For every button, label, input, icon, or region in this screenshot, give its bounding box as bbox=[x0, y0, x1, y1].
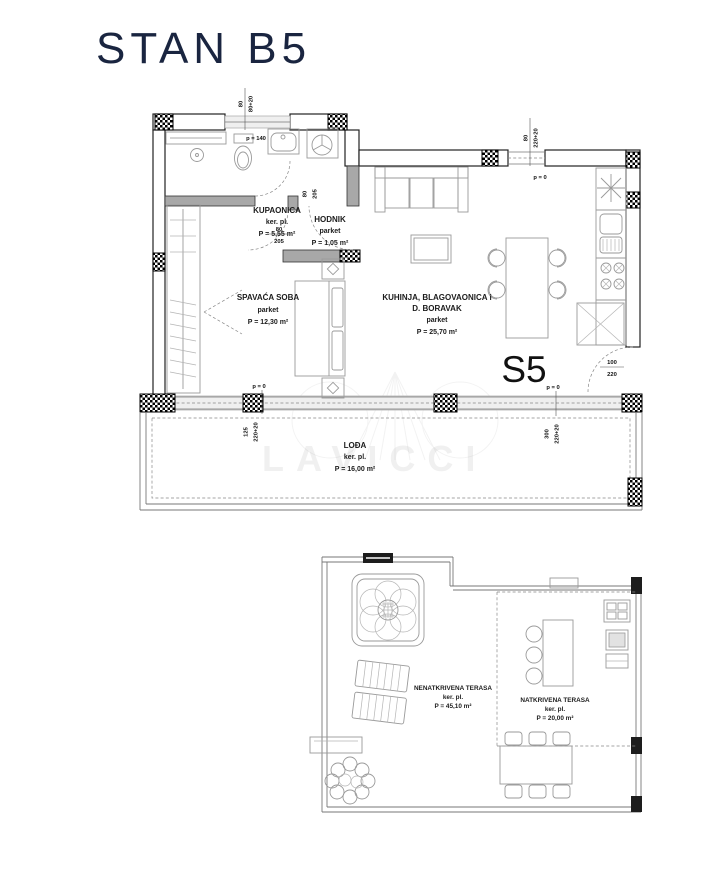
exterior-walls bbox=[153, 114, 640, 395]
outdoor-dining-icon bbox=[500, 732, 572, 798]
living-furniture bbox=[375, 167, 626, 345]
sun-lounger-icon bbox=[355, 660, 410, 692]
svg-text:D. BORAVAK: D. BORAVAK bbox=[412, 304, 462, 313]
svg-text:205: 205 bbox=[313, 188, 319, 198]
svg-text:KUHINJA, BLAGOVAONICA i: KUHINJA, BLAGOVAONICA i bbox=[382, 293, 491, 302]
svg-text:parket: parket bbox=[319, 228, 341, 235]
svg-text:p = 0: p = 0 bbox=[252, 384, 265, 390]
sun-lounger-icon bbox=[352, 692, 407, 724]
washbasin-icon bbox=[268, 129, 299, 154]
svg-text:P = 25,70 m²: P = 25,70 m² bbox=[417, 329, 458, 336]
terrace-plan: NENATKRIVENA TERASA ker. pl. P = 45,10 m… bbox=[310, 553, 642, 812]
svg-text:300: 300 bbox=[545, 429, 551, 439]
sink-icon bbox=[191, 149, 204, 162]
label-nenatkrivena-terasa: NENATKRIVENA TERASA ker. pl. P = 45,10 m… bbox=[414, 685, 492, 710]
svg-text:80: 80 bbox=[303, 191, 309, 197]
floor-plan-page: STAN B5 LAVICCI bbox=[0, 0, 725, 871]
planter-box bbox=[310, 737, 362, 753]
south-glazing-band bbox=[140, 394, 642, 412]
svg-text:P = 16,00 m²: P = 16,00 m² bbox=[335, 466, 376, 473]
room-label-kupaonica: KUPAONICA ker. pl. P = 5,55 m² bbox=[253, 206, 301, 238]
watermark-crest bbox=[292, 372, 498, 460]
svg-text:ker. pl.: ker. pl. bbox=[443, 694, 463, 701]
kitchen-sink-icon bbox=[600, 214, 622, 253]
dining-table-icon bbox=[488, 238, 566, 338]
bed-icon bbox=[295, 281, 345, 376]
coffee-table-icon bbox=[411, 235, 451, 263]
svg-text:ker. pl.: ker. pl. bbox=[266, 219, 288, 226]
sofa-icon bbox=[375, 167, 468, 212]
svg-text:220+20: 220+20 bbox=[555, 424, 561, 444]
svg-text:HODNIK: HODNIK bbox=[314, 215, 346, 224]
unit-label: S5 bbox=[501, 349, 546, 390]
floor-plan-svg: KUPAONICA ker. pl. P = 5,55 m² HODNIK pa… bbox=[0, 0, 725, 871]
apartment-plan: KUPAONICA ker. pl. P = 5,55 m² HODNIK pa… bbox=[140, 88, 642, 510]
svg-text:ker. pl.: ker. pl. bbox=[545, 706, 565, 713]
hood-icon bbox=[597, 174, 625, 202]
svg-text:p = 0: p = 0 bbox=[546, 385, 559, 391]
window-frame bbox=[631, 737, 642, 754]
appliance-box-icon bbox=[577, 303, 624, 345]
svg-text:NENATKRIVENA TERASA: NENATKRIVENA TERASA bbox=[414, 685, 492, 692]
svg-text:parket: parket bbox=[257, 307, 279, 314]
kitchen-counter-icon bbox=[596, 168, 626, 345]
label-natkrivena-terasa: NATKRIVENA TERASA ker. pl. P = 20,00 m² bbox=[520, 697, 590, 722]
svg-text:parket: parket bbox=[426, 317, 448, 324]
svg-text:LOĐA: LOĐA bbox=[344, 441, 367, 450]
plant-icon bbox=[325, 757, 375, 804]
bar-island-icon bbox=[526, 620, 573, 686]
svg-text:100: 100 bbox=[607, 360, 617, 366]
svg-text:125: 125 bbox=[244, 426, 250, 436]
svg-text:220: 220 bbox=[607, 372, 617, 378]
svg-text:P = 20,00 m²: P = 20,00 m² bbox=[536, 715, 573, 722]
svg-text:P = 45,10 m²: P = 45,10 m² bbox=[434, 703, 471, 710]
stove-icon bbox=[601, 263, 624, 289]
washing-machine-icon bbox=[307, 129, 338, 158]
svg-text:80: 80 bbox=[524, 135, 530, 141]
room-label-hodnik: HODNIK parket P = 1,05 m² bbox=[312, 215, 349, 247]
svg-text:80: 80 bbox=[239, 101, 245, 107]
svg-text:80+20: 80+20 bbox=[249, 96, 255, 112]
covered-terrace-boundary bbox=[497, 592, 636, 746]
window-frame bbox=[631, 577, 642, 594]
svg-text:KUPAONICA: KUPAONICA bbox=[253, 206, 301, 215]
room-label-kuhinja: KUHINJA, BLAGOVAONICA i D. BORAVAK parke… bbox=[382, 293, 491, 336]
outdoor-kitchen-icon bbox=[604, 600, 630, 668]
svg-text:205: 205 bbox=[274, 239, 284, 245]
svg-text:p = 140: p = 140 bbox=[246, 136, 266, 142]
svg-text:SPAVAĆA SOBA: SPAVAĆA SOBA bbox=[237, 293, 300, 302]
loggia bbox=[140, 412, 642, 510]
wardrobe-icon bbox=[167, 205, 200, 393]
svg-text:220+20: 220+20 bbox=[534, 128, 540, 148]
svg-text:ker. pl.: ker. pl. bbox=[344, 454, 366, 461]
svg-text:NATKRIVENA TERASA: NATKRIVENA TERASA bbox=[520, 697, 590, 704]
svg-text:P = 12,30 m²: P = 12,30 m² bbox=[248, 319, 289, 326]
svg-text:P = 1,05 m²: P = 1,05 m² bbox=[312, 240, 349, 247]
svg-text:80: 80 bbox=[276, 227, 282, 233]
window-frame bbox=[631, 796, 642, 812]
hot-tub-icon bbox=[352, 574, 424, 646]
svg-text:220+20: 220+20 bbox=[254, 422, 260, 442]
nightstand-icon bbox=[322, 378, 344, 398]
room-label-spavaca-soba: SPAVAĆA SOBA parket P = 12,30 m² bbox=[237, 293, 300, 326]
svg-text:p = 0: p = 0 bbox=[533, 175, 546, 181]
